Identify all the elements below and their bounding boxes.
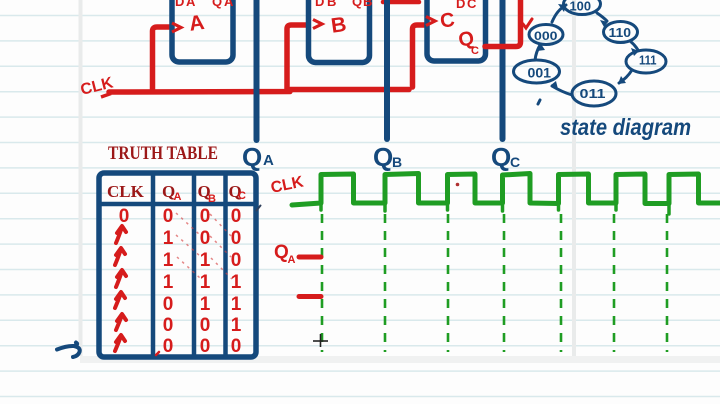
svg-text:A: A: [186, 0, 196, 9]
svg-text:110: 110: [609, 25, 632, 40]
svg-text:0: 0: [200, 206, 211, 227]
svg-text:1: 1: [163, 250, 174, 271]
svg-text:Q: Q: [491, 142, 511, 172]
svg-text:B: B: [330, 13, 348, 38]
svg-text:0: 0: [163, 206, 174, 227]
svg-text:0: 0: [200, 315, 211, 336]
svg-text:A: A: [188, 11, 206, 36]
svg-text:D: D: [456, 0, 465, 11]
svg-text:111: 111: [639, 53, 657, 68]
svg-text:state diagram: state diagram: [560, 114, 691, 140]
svg-text:D: D: [315, 0, 324, 9]
svg-text:0: 0: [163, 315, 174, 336]
svg-text:C: C: [467, 0, 477, 11]
svg-text:B: B: [327, 0, 336, 9]
svg-text:1: 1: [163, 272, 174, 293]
svg-text:A: A: [288, 254, 296, 266]
svg-text:Q: Q: [373, 142, 393, 172]
svg-text:0: 0: [231, 228, 242, 249]
svg-text:A: A: [263, 152, 274, 169]
svg-text:C: C: [510, 154, 520, 170]
svg-text:B: B: [363, 0, 372, 9]
svg-text:C: C: [439, 9, 456, 33]
svg-text:A: A: [174, 191, 182, 203]
svg-text:0: 0: [231, 206, 242, 227]
svg-text:B: B: [208, 193, 216, 205]
svg-text:CLK: CLK: [107, 182, 145, 201]
svg-text:TRUTH TABLE: TRUTH TABLE: [108, 143, 218, 164]
svg-text:0: 0: [231, 250, 242, 271]
svg-text:000: 000: [534, 29, 558, 43]
svg-text:011: 011: [580, 86, 606, 101]
svg-text:Q: Q: [352, 0, 362, 9]
svg-text:Q: Q: [212, 0, 222, 9]
svg-text:1: 1: [231, 272, 242, 293]
svg-text:C: C: [471, 45, 479, 57]
svg-text:1: 1: [200, 250, 211, 271]
svg-text:100: 100: [570, 0, 592, 14]
svg-text:B: B: [392, 154, 402, 170]
svg-text:1: 1: [200, 294, 211, 315]
svg-text:D: D: [175, 0, 184, 9]
svg-text:0: 0: [200, 228, 211, 249]
svg-text:1: 1: [231, 315, 242, 336]
svg-text:0: 0: [163, 294, 174, 315]
svg-text:0: 0: [200, 336, 211, 357]
svg-text:Q: Q: [242, 142, 262, 172]
svg-text:A: A: [224, 0, 234, 9]
svg-text:0: 0: [119, 206, 130, 227]
svg-text:0: 0: [163, 336, 174, 357]
svg-text:C: C: [238, 190, 246, 202]
svg-text:1: 1: [200, 272, 211, 293]
svg-text:1: 1: [231, 294, 242, 315]
svg-text:1: 1: [163, 228, 174, 249]
svg-text:0: 0: [231, 336, 242, 357]
svg-text:001: 001: [528, 66, 552, 81]
